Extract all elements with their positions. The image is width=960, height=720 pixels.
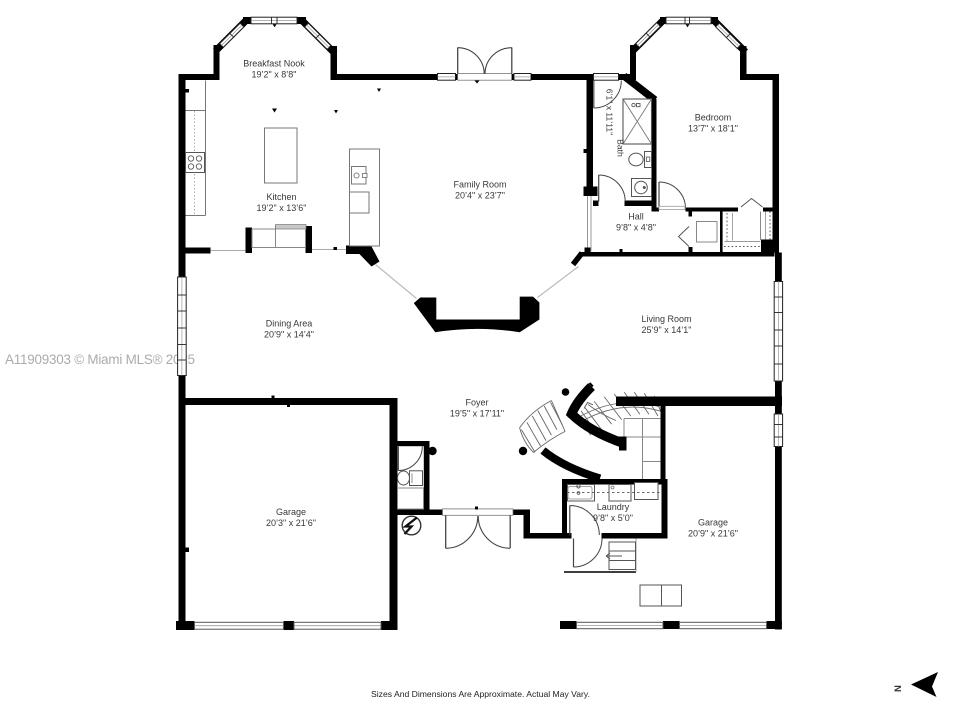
svg-text:Garage: Garage [276,507,306,517]
svg-text:Laundry: Laundry [597,502,630,512]
svg-text:N: N [893,685,904,692]
svg-text:Dining Area: Dining Area [266,319,313,329]
svg-text:6’1" x 11’11": 6’1" x 11’11" [605,89,615,135]
svg-text:19’2" x 8’8": 19’2" x 8’8" [252,70,297,80]
svg-text:Bedroom: Bedroom [695,113,732,123]
svg-text:Foyer: Foyer [465,398,488,408]
svg-text:Kitchen: Kitchen [266,192,296,202]
svg-text:20’9" x 14’4": 20’9" x 14’4" [264,330,314,340]
svg-text:20’9" x 21’6": 20’9" x 21’6" [688,529,738,539]
svg-text:Garage: Garage [698,518,728,528]
svg-text:20’3" x 21’6": 20’3" x 21’6" [266,518,316,528]
svg-text:Hall: Hall [628,212,644,222]
svg-text:Breakfast Nook: Breakfast Nook [243,59,305,69]
svg-text:20’4" x 23’7": 20’4" x 23’7" [455,191,505,201]
svg-text:Sizes And Dimensions Are Appro: Sizes And Dimensions Are Approximate. Ac… [371,689,590,699]
svg-text:13’7" x 18’1": 13’7" x 18’1" [688,124,738,134]
svg-text:A11909303 © Miami MLS® 2025: A11909303 © Miami MLS® 2025 [5,352,195,367]
svg-text:9’8" x 5’0": 9’8" x 5’0" [593,513,633,523]
svg-text:Living Room: Living Room [641,314,691,324]
svg-text:19’5" x 17’11": 19’5" x 17’11" [450,409,504,419]
svg-text:19’2" x 13’6": 19’2" x 13’6" [257,203,307,213]
svg-text:9’8" x 4’8": 9’8" x 4’8" [616,223,656,233]
svg-text:Bath: Bath [616,139,626,157]
svg-text:25’9" x 14’1": 25’9" x 14’1" [642,325,692,335]
svg-text:Family Room: Family Room [453,180,506,190]
